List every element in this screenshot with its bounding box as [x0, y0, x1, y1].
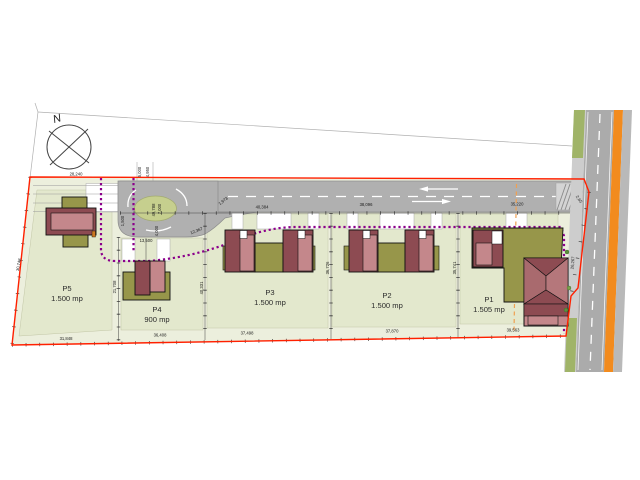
parcel-label-p5: P5 [62, 284, 71, 293]
dim-bottom-p5: 31,848 [60, 336, 73, 341]
driveway-p3-center [257, 213, 291, 229]
dim-top-p3: 40,384 [256, 205, 269, 210]
site-plan-svg: N [0, 0, 640, 480]
dim-div-p4-p3: 40,331 [199, 281, 204, 294]
parcel-label-p3: P3 [265, 288, 274, 297]
dim-div-p2-p1: 35,741 [452, 261, 457, 274]
house-p1-hip-roof [524, 258, 568, 326]
parcel-area-p5: 1.500 mp [51, 294, 83, 303]
dim-div-p5-p4: 21,708 [112, 280, 117, 293]
dim-top-p2: 38,096 [360, 202, 373, 207]
dim-top-left: 28,240 [70, 172, 83, 177]
driveway-p3-outer-left [232, 213, 243, 229]
dim-bottom-p3: 37,498 [241, 331, 254, 336]
parcel-area-p3: 1.500 mp [254, 298, 286, 307]
parcel-area-p2: 1.500 mp [371, 301, 403, 310]
dim-top-p1: 35,220 [511, 202, 524, 207]
dim-div-p3-p2: 36,726 [325, 261, 330, 274]
green-verge-top [572, 110, 585, 158]
parcel-label-p4: P4 [152, 305, 161, 314]
dim-island-b: 49,788 [151, 203, 156, 216]
dim-stub-a: 5,000 [137, 166, 142, 177]
parcel-area-p4: 900 mp [144, 315, 169, 324]
dim-bulb-radius: 4,000 [154, 225, 159, 236]
dim-stub-b: 4,950 [145, 166, 150, 177]
site-plan-page: N [0, 0, 640, 480]
parcel-label-p2: P2 [382, 291, 391, 300]
main-road-vertical [564, 110, 632, 372]
parcel-area-p1: 1.505 mp [473, 305, 505, 314]
dim-island-a: 7,000 [157, 203, 162, 214]
dim-bottom-p4: 36,408 [154, 333, 167, 338]
parcel-label-p1: P1 [484, 295, 493, 304]
dim-bottom-p1: 39,563 [507, 328, 520, 333]
dim-bottom-p2: 37,870 [386, 329, 399, 334]
dim-bulb-offset: 1,500 [120, 215, 125, 226]
dim-bulb-width: 13,500 [140, 238, 153, 243]
